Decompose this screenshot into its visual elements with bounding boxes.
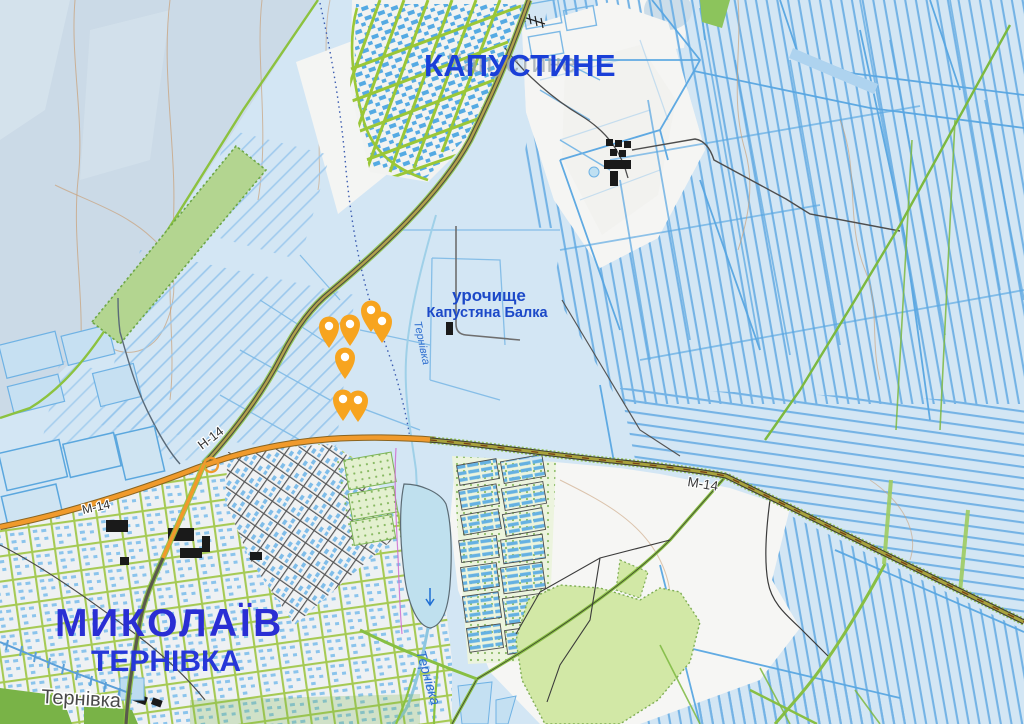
- svg-text:МИКОЛАЇВ: МИКОЛАЇВ: [55, 602, 284, 645]
- svg-text:Тернівка: Тернівка: [41, 686, 123, 712]
- svg-text:ТЕРНІВКА: ТЕРНІВКА: [91, 645, 241, 678]
- svg-text:КАПУСТИНЕ: КАПУСТИНЕ: [424, 48, 616, 83]
- svg-text:урочище: урочище: [452, 286, 526, 305]
- svg-text:Капустяна Балка: Капустяна Балка: [426, 305, 548, 321]
